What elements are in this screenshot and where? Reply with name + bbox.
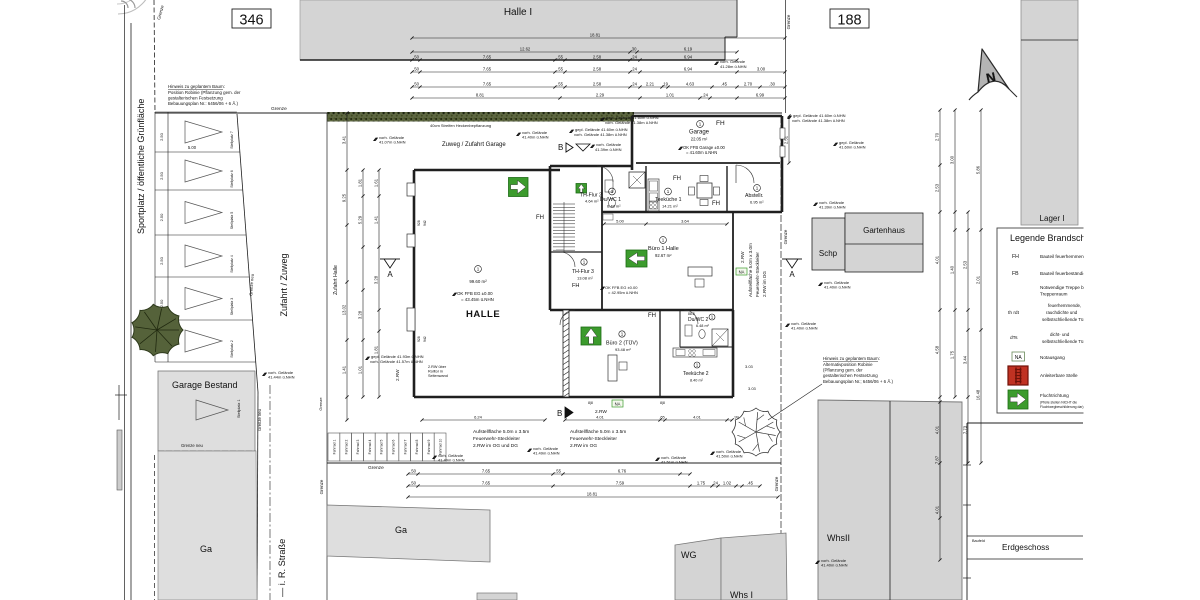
svg-text:41.39m ü.NHN: 41.39m ü.NHN — [595, 147, 622, 152]
svg-text:7.73: 7.73 — [963, 425, 968, 434]
svg-text:2.50: 2.50 — [159, 171, 164, 180]
svg-text:5.00: 5.00 — [616, 219, 625, 224]
svg-text:Rolltor in: Rolltor in — [428, 370, 443, 374]
svg-text:14.21 m²: 14.21 m² — [662, 204, 678, 209]
svg-text:WhsII: WhsII — [827, 533, 850, 543]
svg-text:Halle I: Halle I — [504, 7, 532, 18]
svg-text:NA: NA — [1015, 355, 1023, 361]
svg-text:Büro 2 (TÜV): Büro 2 (TÜV) — [606, 340, 638, 347]
svg-text:6.99: 6.99 — [756, 93, 765, 98]
svg-text:3.28: 3.28 — [358, 310, 363, 319]
svg-text:41.60m ü.NHN: 41.60m ü.NHN — [839, 145, 866, 150]
svg-text:gestalterischen Festsetzung: gestalterischen Festsetzung — [168, 96, 223, 101]
svg-text:93.48 m²: 93.48 m² — [615, 347, 631, 352]
svg-text:Grenze: Grenze — [319, 479, 324, 494]
svg-text:Sportplatz / öffentliche Grünf: Sportplatz / öffentliche Grünfläche — [136, 99, 146, 234]
svg-text:2.RW: 2.RW — [740, 251, 745, 263]
svg-text:41.39m ü.NHN: 41.39m ü.NHN — [819, 205, 846, 210]
svg-text:2.50: 2.50 — [159, 213, 164, 222]
svg-text:41.44m ü.NHN: 41.44m ü.NHN — [268, 375, 295, 380]
svg-text:Gartenhaus: Gartenhaus — [863, 226, 905, 235]
svg-text:Fluchtrichtung: Fluchtrichtung — [1040, 393, 1069, 398]
svg-text:41.50m ü.NHN: 41.50m ü.NHN — [716, 454, 743, 459]
svg-text:22.05 m²: 22.05 m² — [691, 137, 708, 142]
svg-text:Lager I: Lager I — [1040, 214, 1065, 223]
svg-text:A: A — [387, 270, 393, 279]
svg-text:2.RW: 2.RW — [395, 369, 400, 381]
svg-text:vorh. Gelände 41.38m ü.NHN: vorh. Gelände 41.38m ü.NHN — [792, 118, 845, 123]
svg-text:Fahrrad 1: Fahrrad 1 — [333, 440, 337, 455]
svg-text:1.40: 1.40 — [950, 265, 955, 274]
svg-text:2.70: 2.70 — [744, 82, 753, 87]
svg-text:Whs I: Whs I — [730, 590, 753, 600]
svg-text:.50: .50 — [410, 469, 416, 474]
svg-text:Aufstellfläche 5.0m x 3.0m: Aufstellfläche 5.0m x 3.0m — [748, 243, 753, 297]
svg-text:Baufeld: Baufeld — [972, 539, 985, 543]
svg-text:Hinweis zu geplantem Baum:: Hinweis zu geplantem Baum: — [823, 356, 880, 361]
svg-text:5.00: 5.00 — [188, 145, 197, 150]
svg-text:7.87: 7.87 — [935, 455, 940, 464]
svg-text:= 41.60m ü.NHN: = 41.60m ü.NHN — [686, 150, 717, 155]
svg-text:vorh. Gelände 41.57m ü.NHN: vorh. Gelände 41.57m ü.NHN — [370, 359, 423, 364]
svg-text:Du/WC 2: Du/WC 2 — [688, 317, 709, 323]
svg-text:Grenze neu: Grenze neu — [257, 408, 262, 431]
svg-text:7.65: 7.65 — [482, 481, 491, 486]
svg-text:4.63: 4.63 — [686, 82, 695, 87]
svg-text:2.58: 2.58 — [593, 67, 602, 72]
svg-text:1.81: 1.81 — [358, 178, 363, 187]
svg-text:.24: .24 — [712, 481, 718, 486]
svg-text:.19: .19 — [662, 82, 668, 87]
svg-text:Zufahrt / Zuweg: Zufahrt / Zuweg — [279, 253, 289, 316]
svg-text:1.01: 1.01 — [666, 93, 675, 98]
svg-text:NA: NA — [615, 402, 621, 407]
svg-text:— i. R. Straße: — i. R. Straße — [277, 539, 287, 597]
svg-text:Bebauungsplan Nr.: 6456/06 + 6: Bebauungsplan Nr.: 6456/06 + 6 Å.) — [168, 101, 238, 106]
svg-text:Teeküche 1: Teeküche 1 — [655, 197, 682, 203]
svg-text:41.40m ü.NHN: 41.40m ü.NHN — [522, 135, 549, 140]
svg-text:.24: .24 — [631, 82, 637, 87]
svg-text:3.00: 3.00 — [757, 67, 766, 72]
svg-text:dTs: dTs — [1010, 335, 1018, 341]
svg-text:Garage Bestand: Garage Bestand — [172, 380, 238, 390]
svg-text:2.50: 2.50 — [159, 256, 164, 265]
svg-text:7.65: 7.65 — [483, 67, 492, 72]
svg-text:Aufstellfläche 5.0m x 3.5m: Aufstellfläche 5.0m x 3.5m — [570, 429, 626, 435]
svg-text:Fahrrad 3: Fahrrad 3 — [356, 440, 360, 455]
svg-text:FH: FH — [572, 283, 579, 289]
svg-text:.55: .55 — [557, 82, 563, 87]
svg-text:Feuerwehr-Steckleiter: Feuerwehr-Steckleiter — [570, 436, 617, 442]
svg-text:41.49m ü.NHN: 41.49m ü.NHN — [438, 458, 465, 463]
svg-text:1.61: 1.61 — [374, 178, 379, 187]
svg-text:2.RW im OG: 2.RW im OG — [570, 443, 597, 449]
svg-text:2.RW im OG und DG: 2.RW im OG und DG — [473, 443, 518, 449]
svg-text:2.70: 2.70 — [935, 132, 940, 141]
svg-text:40cm Streifen Heckenbepflanzun: 40cm Streifen Heckenbepflanzung — [430, 123, 491, 128]
svg-text:3.41: 3.41 — [342, 135, 347, 144]
svg-text:2.51: 2.51 — [784, 135, 789, 144]
svg-text:Grenze: Grenze — [271, 106, 287, 112]
svg-text:.24: .24 — [702, 93, 708, 98]
svg-text:4.01: 4.01 — [935, 425, 940, 434]
svg-text:4.58: 4.58 — [935, 345, 940, 354]
svg-text:2.21: 2.21 — [646, 82, 655, 87]
svg-text:13.08 m²: 13.08 m² — [577, 276, 593, 281]
svg-text:1.02: 1.02 — [723, 481, 732, 486]
svg-text:2.RW über: 2.RW über — [428, 365, 447, 369]
svg-text:6.19: 6.19 — [684, 47, 693, 52]
svg-text:7.59: 7.59 — [616, 481, 625, 486]
svg-text:WG: WG — [681, 550, 697, 560]
svg-text:Position Robinie (Pflanzung ge: Position Robinie (Pflanzung gem. der — [168, 90, 241, 95]
svg-text:1.01: 1.01 — [358, 365, 363, 374]
svg-text:rauchdichte und: rauchdichte und — [1046, 310, 1078, 315]
svg-text:.24: .24 — [631, 67, 637, 72]
svg-text:6.24: 6.24 — [474, 415, 483, 420]
svg-text:= 43.45m ü.NHN: = 43.45m ü.NHN — [461, 297, 494, 302]
svg-text:Garage: Garage — [689, 130, 710, 136]
svg-text:942: 942 — [423, 220, 427, 226]
svg-text:6.94: 6.94 — [684, 67, 693, 72]
svg-text:.30: .30 — [769, 82, 775, 87]
svg-text:2.RW: 2.RW — [595, 409, 607, 415]
svg-text:2.53: 2.53 — [935, 183, 940, 192]
svg-text:Stellplatz 6: Stellplatz 6 — [230, 170, 234, 188]
svg-text:4.01: 4.01 — [596, 415, 605, 420]
svg-text:41.07m ü.NHN: 41.07m ü.NHN — [379, 140, 406, 145]
svg-text:88.8: 88.8 — [688, 312, 695, 316]
svg-text:FB: FB — [1012, 271, 1019, 277]
svg-text:.55: .55 — [557, 55, 563, 60]
svg-text:928: 928 — [417, 336, 421, 342]
svg-text:.65: .65 — [659, 415, 665, 420]
svg-text:1.75: 1.75 — [950, 350, 955, 359]
svg-text:Notwendige Treppe bzw.: Notwendige Treppe bzw. — [1040, 285, 1090, 290]
svg-text:13.02: 13.02 — [342, 304, 347, 315]
svg-text:Teeküche 2: Teeküche 2 — [683, 371, 709, 377]
svg-text:2.RW im OG: 2.RW im OG — [762, 271, 767, 297]
svg-text:Aufstellfläche 5.0m x 3.5m: Aufstellfläche 5.0m x 3.5m — [473, 429, 529, 435]
svg-text:NA: NA — [739, 270, 745, 275]
svg-text:188: 188 — [837, 13, 861, 29]
svg-text:Schp: Schp — [819, 249, 838, 258]
svg-text:7.65: 7.65 — [482, 469, 491, 474]
svg-text:92.67 m²: 92.67 m² — [655, 253, 672, 258]
svg-text:Fahrrad 9: Fahrrad 9 — [427, 440, 431, 455]
svg-text:Feuerwehr-Steckleiter: Feuerwehr-Steckleiter — [473, 436, 520, 442]
svg-text:Stellplatz 4: Stellplatz 4 — [230, 255, 234, 273]
svg-text:vorh. Gelände 41.38m ü.NHN: vorh. Gelände 41.38m ü.NHN — [605, 120, 658, 125]
svg-text:6.95 m²: 6.95 m² — [750, 200, 764, 205]
svg-text:8|8: 8|8 — [588, 401, 593, 405]
svg-text:928: 928 — [417, 220, 421, 226]
svg-text:Abstellr.: Abstellr. — [745, 193, 763, 199]
svg-text:Seitenwand: Seitenwand — [428, 374, 448, 378]
svg-text:Fahrrad 6: Fahrrad 6 — [392, 440, 396, 455]
svg-text:th rdt: th rdt — [1008, 310, 1020, 316]
svg-text:8|8: 8|8 — [660, 401, 665, 405]
svg-text:Erdgeschoss: Erdgeschoss — [1002, 543, 1049, 552]
svg-text:Fahrrad 8: Fahrrad 8 — [415, 440, 419, 455]
svg-text:3.00: 3.00 — [950, 155, 955, 164]
svg-text:A: A — [789, 270, 795, 279]
svg-text:41.51m ü.NHN: 41.51m ü.NHN — [661, 460, 688, 465]
svg-text:TH-Flur 3: TH-Flur 3 — [572, 269, 594, 275]
svg-text:vorh. Gelände 41.38m ü.NHN: vorh. Gelände 41.38m ü.NHN — [574, 132, 627, 137]
svg-text:Treppenraum: Treppenraum — [1040, 292, 1068, 297]
svg-text:.30: .30 — [631, 47, 637, 52]
svg-text:3.64: 3.64 — [681, 219, 690, 224]
svg-text:6.76: 6.76 — [618, 469, 627, 474]
svg-text:.24: .24 — [631, 55, 637, 60]
svg-text:9.25: 9.25 — [342, 193, 347, 202]
svg-text:3.03: 3.03 — [745, 364, 754, 369]
svg-text:4.01: 4.01 — [693, 415, 702, 420]
svg-text:6.48 m²: 6.48 m² — [607, 204, 621, 209]
svg-text:Bebauungsplan Nr.; 6456/06 + 6: Bebauungsplan Nr.; 6456/06 + 6 Å.) — [823, 379, 893, 384]
svg-text:942: 942 — [423, 336, 427, 342]
svg-text:2.50: 2.50 — [159, 299, 164, 308]
svg-text:FH: FH — [673, 176, 681, 182]
svg-text:.50: .50 — [413, 55, 419, 60]
svg-text:Fahrrad 7: Fahrrad 7 — [403, 440, 407, 455]
svg-text:OK FFB EG ±0.00: OK FFB EG ±0.00 — [457, 291, 493, 296]
svg-text:FH: FH — [716, 120, 725, 127]
svg-text:Stellplatz 1: Stellplatz 1 — [237, 399, 241, 418]
svg-text:.50: .50 — [413, 67, 419, 72]
svg-text:4.01: 4.01 — [935, 505, 940, 514]
svg-text:Grenze: Grenze — [783, 229, 788, 244]
svg-text:5.86: 5.86 — [976, 165, 981, 174]
svg-text:Fluchtwegbeschilderung dar): Fluchtwegbeschilderung dar) — [1040, 405, 1084, 409]
svg-text:.99: .99 — [733, 415, 739, 420]
svg-text:2.01: 2.01 — [976, 275, 981, 284]
svg-text:4.01: 4.01 — [935, 255, 940, 264]
svg-text:Grenze: Grenze — [774, 476, 779, 491]
svg-text:B: B — [558, 143, 563, 152]
svg-text:Feuerwehr-Steckleiter: Feuerwehr-Steckleiter — [755, 252, 760, 297]
svg-text:(Pflanzung gem. der: (Pflanzung gem. der — [823, 368, 863, 373]
svg-text:3.44: 3.44 — [963, 355, 968, 364]
svg-text:Fahrrad 4: Fahrrad 4 — [368, 440, 372, 455]
svg-text:Stellplatz 2: Stellplatz 2 — [230, 340, 234, 358]
svg-text:selbstschließende Tür: selbstschließende Tür — [1042, 339, 1085, 344]
svg-text:dicht- und: dicht- und — [1050, 332, 1070, 337]
svg-text:Grenze: Grenze — [318, 397, 323, 411]
svg-text:.45: .45 — [721, 82, 727, 87]
svg-text:FH: FH — [648, 313, 656, 319]
svg-text:7.65: 7.65 — [483, 82, 492, 87]
svg-text:2.58: 2.58 — [593, 55, 602, 60]
svg-text:41.40m ü.NHN: 41.40m ü.NHN — [821, 563, 848, 568]
svg-text:Stellplatz 3: Stellplatz 3 — [230, 298, 234, 316]
svg-text:Stellplatz 7: Stellplatz 7 — [230, 131, 234, 149]
svg-text:Alternativposition Robinie: Alternativposition Robinie — [823, 362, 873, 367]
svg-text:1.81: 1.81 — [374, 345, 379, 354]
svg-text:Ga: Ga — [395, 525, 407, 535]
svg-text:41.28m ü.NHN: 41.28m ü.NHN — [720, 64, 747, 69]
svg-text:1.75: 1.75 — [697, 481, 706, 486]
svg-text:= 42.95m ü.NHN: = 42.95m ü.NHN — [608, 290, 638, 295]
svg-text:Grenze: Grenze — [368, 465, 384, 471]
svg-text:6.94: 6.94 — [684, 55, 693, 60]
svg-text:Büro 1 Halle: Büro 1 Halle — [648, 246, 679, 252]
svg-text:Hinweis zu geplantem Baum:: Hinweis zu geplantem Baum: — [168, 84, 225, 89]
svg-text:5.29: 5.29 — [358, 215, 363, 224]
svg-text:346: 346 — [239, 13, 263, 29]
svg-text:8.81: 8.81 — [476, 93, 485, 98]
svg-text:4.64 m²: 4.64 m² — [585, 199, 599, 204]
svg-text:Stellplatz 5: Stellplatz 5 — [230, 212, 234, 230]
svg-text:HALLE: HALLE — [466, 309, 500, 320]
svg-text:41.40m ü.NHN: 41.40m ü.NHN — [824, 285, 851, 290]
svg-text:1.41: 1.41 — [342, 365, 347, 374]
svg-text:Fahrrad 5: Fahrrad 5 — [380, 440, 384, 455]
svg-text:1.41: 1.41 — [374, 215, 379, 224]
svg-text:99.60 m²: 99.60 m² — [469, 279, 487, 284]
svg-text:2.50: 2.50 — [159, 132, 164, 141]
svg-text:18.81: 18.81 — [587, 492, 598, 497]
svg-text:Ga: Ga — [200, 544, 212, 554]
svg-text:7.65: 7.65 — [483, 55, 492, 60]
svg-text:gestalterischen Festsetzung: gestalterischen Festsetzung — [823, 373, 878, 378]
svg-text:2.53: 2.53 — [963, 260, 968, 269]
svg-text:3.28: 3.28 — [374, 275, 379, 284]
svg-text:Du/WC 1: Du/WC 1 — [600, 197, 621, 203]
svg-text:41.49m ü.NHN: 41.49m ü.NHN — [533, 451, 560, 456]
svg-text:selbstschließende Tür: selbstschließende Tür — [1042, 317, 1085, 322]
svg-text:Fahrrad 2: Fahrrad 2 — [344, 440, 348, 455]
svg-text:3.03: 3.03 — [748, 386, 757, 391]
svg-text:16.48: 16.48 — [976, 389, 981, 400]
svg-text:.50: .50 — [413, 82, 419, 87]
svg-text:.45: .45 — [747, 481, 753, 486]
svg-text:FH: FH — [536, 215, 544, 221]
svg-text:12.62: 12.62 — [520, 47, 531, 52]
svg-text:.55: .55 — [557, 67, 563, 72]
svg-text:2.29: 2.29 — [596, 93, 605, 98]
svg-text:Zuweg / Zufahrt Garage: Zuweg / Zufahrt Garage — [442, 142, 506, 148]
svg-text:.50: .50 — [410, 481, 416, 486]
svg-text:41.40m ü.NHN: 41.40m ü.NHN — [791, 326, 818, 331]
svg-text:B: B — [557, 409, 562, 418]
svg-text:6.48 m²: 6.48 m² — [696, 324, 710, 328]
svg-text:Anleiterbare Stelle: Anleiterbare Stelle — [1040, 373, 1078, 378]
svg-text:Grenze neu: Grenze neu — [181, 443, 204, 448]
svg-text:feuerhemmende,: feuerhemmende, — [1048, 303, 1081, 308]
svg-text:Notausgang: Notausgang — [1040, 355, 1065, 360]
svg-text:Zufahrt Halle: Zufahrt Halle — [333, 265, 339, 295]
svg-text:2.58: 2.58 — [593, 82, 602, 87]
svg-text:FH: FH — [712, 201, 720, 207]
svg-text:Grenze: Grenze — [786, 14, 791, 29]
svg-text:18.81: 18.81 — [590, 33, 601, 38]
svg-text:8.40 m²: 8.40 m² — [690, 379, 704, 383]
svg-text:.55: .55 — [555, 469, 561, 474]
svg-text:(Pfeile stellen NICHT die: (Pfeile stellen NICHT die — [1040, 401, 1077, 405]
svg-text:FH: FH — [1012, 254, 1019, 260]
